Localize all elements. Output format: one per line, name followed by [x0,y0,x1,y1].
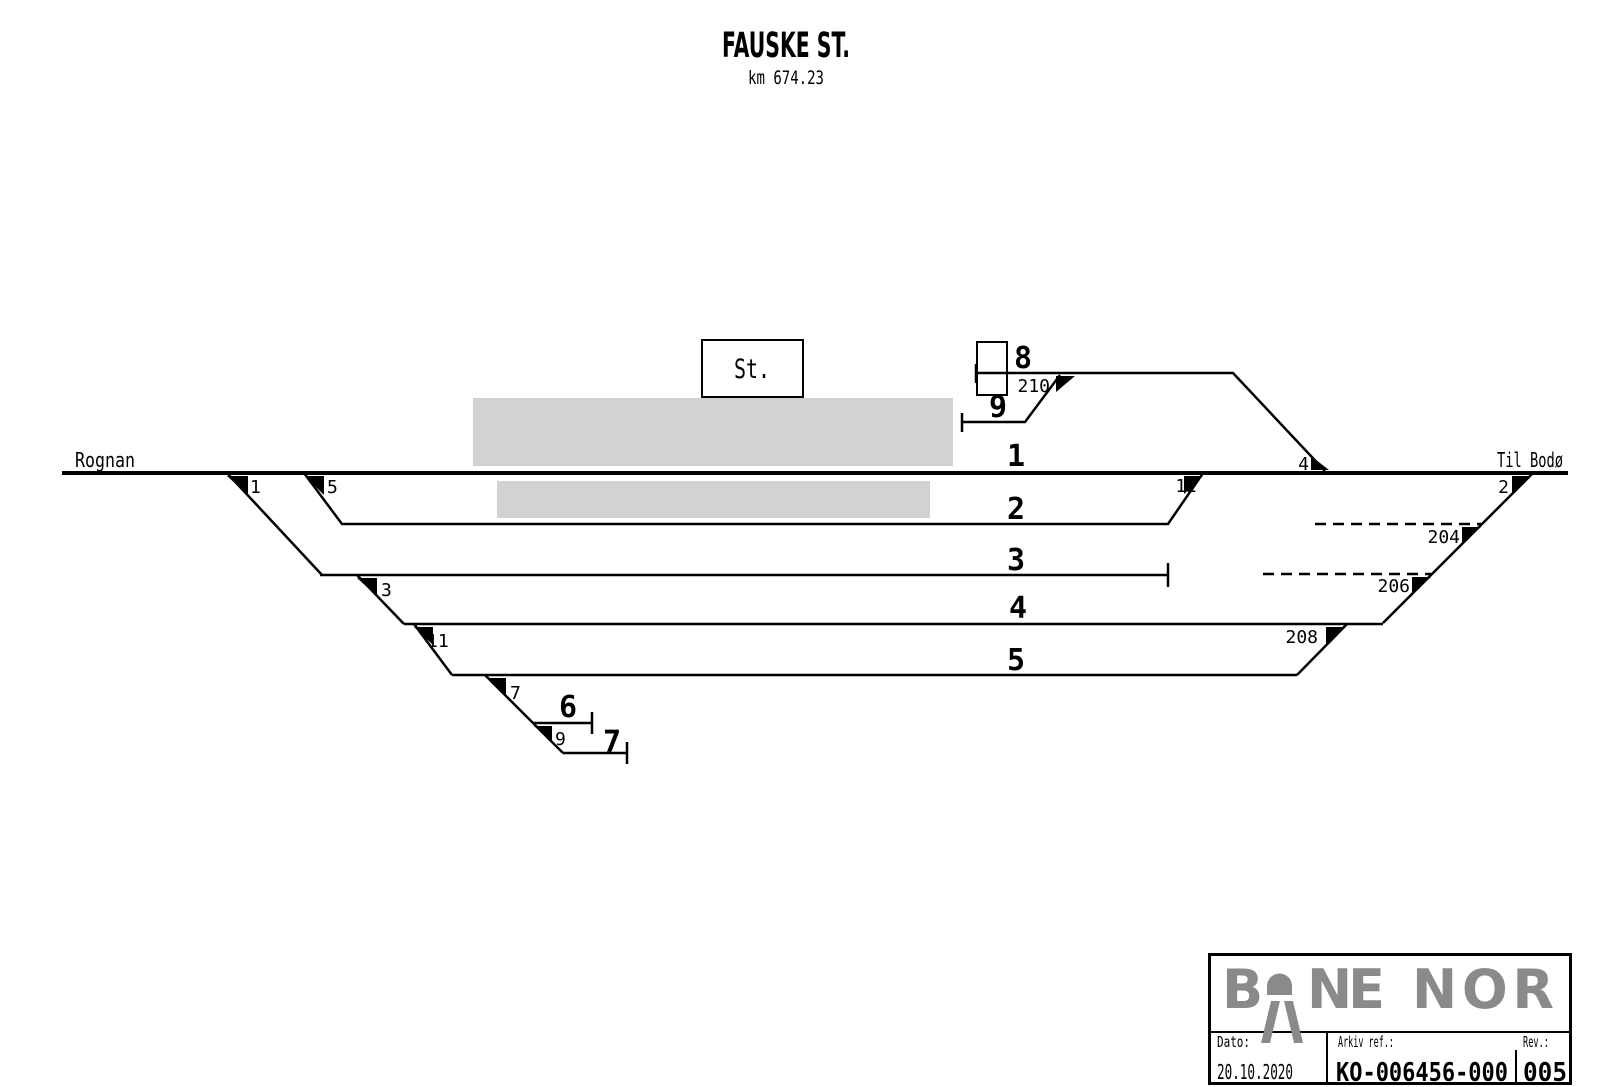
switch-210-marker [1056,376,1075,392]
track-4-label: 4 [1009,591,1027,626]
track-3-label: 3 [1007,543,1025,578]
page-title: FAUSKE ST. [722,26,850,66]
track-6-label: 6 [559,690,577,725]
date-value: 20.10.2020 [1217,1060,1293,1084]
direction-right-label: Til Bodø [1497,448,1563,472]
brand-letters-ne: NE [1307,958,1385,1021]
switch-3-label: 3 [381,580,392,601]
switch-206-label: 206 [1377,576,1410,597]
switch-2-label: 2 [1498,477,1509,498]
track-2-label: 2 [1007,492,1025,527]
title-block: B NE NOR Dato: 20.10.2020 Arkiv ref.: KO… [1210,955,1571,1087]
brand-letters-nor: NOR [1412,958,1554,1021]
switch-5-label: 5 [327,477,338,498]
switch-4-label: 4 [1298,454,1309,475]
switch-1-label: 1 [250,477,261,498]
platform-island [497,481,930,518]
date-label: Dato: [1217,1033,1250,1051]
track-5-label: 5 [1007,643,1025,678]
revision-label: Rev.: [1523,1033,1549,1051]
station-building-label: St. [734,354,770,385]
track-8-shed-box [977,342,1007,395]
switch-12-label: 12 [1175,476,1197,497]
switch-5-marker [305,476,324,495]
switch-7-label: 7 [510,683,521,704]
switch-9-label: 9 [555,729,566,750]
archive-ref-value: KO-006456-000 [1336,1058,1508,1087]
revision-value: 005 [1523,1058,1567,1087]
switch-11-label: 11 [427,631,449,652]
switch-208-label: 208 [1285,627,1318,648]
track-8-label: 8 [1014,341,1032,376]
track-plan-page: FAUSKE ST. km 674.23 St. [0,0,1600,1087]
switch-3-marker [357,578,377,596]
track-1-label: 1 [1007,439,1025,474]
direction-left-label: Rognan [75,448,135,472]
page-km-label: km 674.23 [748,67,824,89]
switch-210-label: 210 [1017,376,1050,397]
track-7-label: 7 [603,725,621,760]
switch-4-marker [1311,456,1329,470]
switch-1-marker [227,476,248,495]
platform-main [473,398,953,466]
track-diagram: FAUSKE ST. km 674.23 St. [0,0,1600,1087]
archive-ref-label: Arkiv ref.: [1338,1033,1394,1051]
switch-204-label: 204 [1427,527,1460,548]
track-9-label: 9 [989,390,1007,425]
brand-letter-b: B [1222,958,1263,1021]
